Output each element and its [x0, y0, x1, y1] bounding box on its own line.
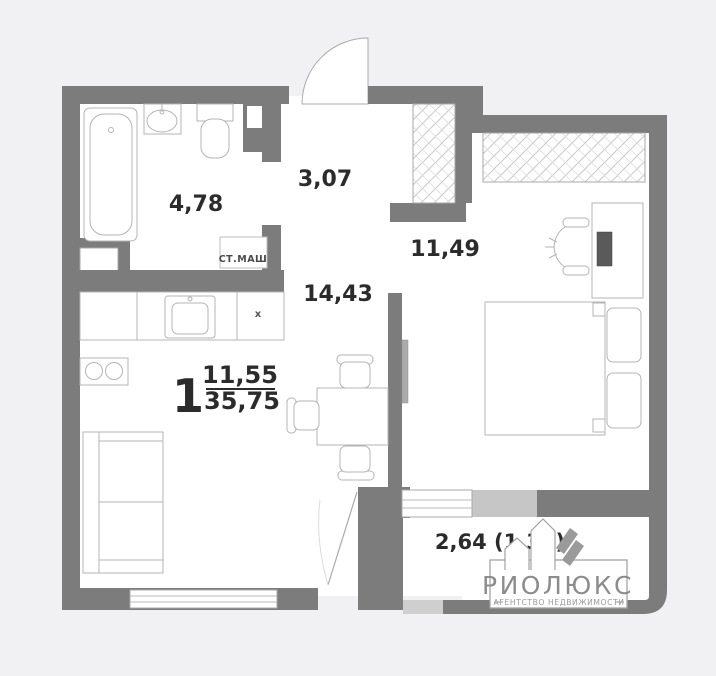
- living-area-value: 11,55: [202, 361, 278, 389]
- wall-bedroom-entry-top: [390, 203, 466, 222]
- wall-bath-right-top: [262, 104, 281, 162]
- wall-living-bedroom: [388, 293, 402, 487]
- chair-top: [337, 355, 373, 388]
- living-area-label: 14,43: [303, 282, 373, 307]
- entrance-door-swing: [302, 38, 368, 104]
- wall-balcony-light-segment: [403, 600, 443, 614]
- pillow-2: [607, 373, 641, 428]
- washing-machine-label: СТ.МАШ: [219, 254, 268, 265]
- floor-plan-image: СТ.МАШ x: [0, 0, 716, 676]
- wall-top-bedroom: [465, 115, 667, 133]
- hallway-area-label: 3,07: [298, 167, 352, 192]
- tv: [402, 340, 408, 403]
- sofa: [83, 432, 163, 573]
- bathroom-area-label: 4,78: [169, 192, 223, 217]
- total-area-value: 35,75: [204, 387, 280, 415]
- window-living: [130, 590, 277, 608]
- logo-tagline: АГЕНТСТВО НЕДВИЖИМОСТИ: [493, 598, 624, 607]
- bathtub: [84, 108, 137, 241]
- wall-bedroom-balcony: [537, 490, 649, 517]
- kitchen-sink: [165, 296, 215, 338]
- toilet: [197, 104, 233, 158]
- dining-table: [317, 388, 388, 445]
- desk: [592, 203, 643, 298]
- hallway-wardrobe: [413, 104, 455, 203]
- chair-bottom: [338, 446, 374, 480]
- wall-left: [62, 86, 80, 610]
- chair-left: [287, 398, 319, 433]
- desk-monitor: [597, 232, 612, 266]
- wall-bath-bottom: [62, 270, 284, 292]
- wall-bedroom-balcony-light: [472, 490, 537, 517]
- vent-mark: x: [255, 309, 262, 320]
- bedroom-area-label: 11,49: [410, 237, 480, 262]
- window-bedroom-balcony: [402, 490, 472, 517]
- washing-machine-slot: СТ.МАШ: [219, 237, 268, 268]
- duct-niche: [80, 248, 118, 272]
- bedroom-wardrobe: [483, 133, 645, 182]
- apartment-summary: 1 11,55 35,75: [172, 361, 280, 423]
- wall-balcony-column: [358, 518, 403, 610]
- floor-plan-svg: СТ.МАШ x: [0, 0, 716, 676]
- rooms-count: 1: [172, 369, 204, 423]
- pillow-1: [607, 308, 641, 362]
- logo-name: РИОЛЮКС: [482, 571, 634, 600]
- wall-top-left: [62, 86, 289, 104]
- wall-right: [649, 115, 667, 575]
- stove-hob: [80, 358, 128, 385]
- bathroom-sink: [144, 104, 181, 134]
- wall-hall-bedroom: [455, 104, 472, 203]
